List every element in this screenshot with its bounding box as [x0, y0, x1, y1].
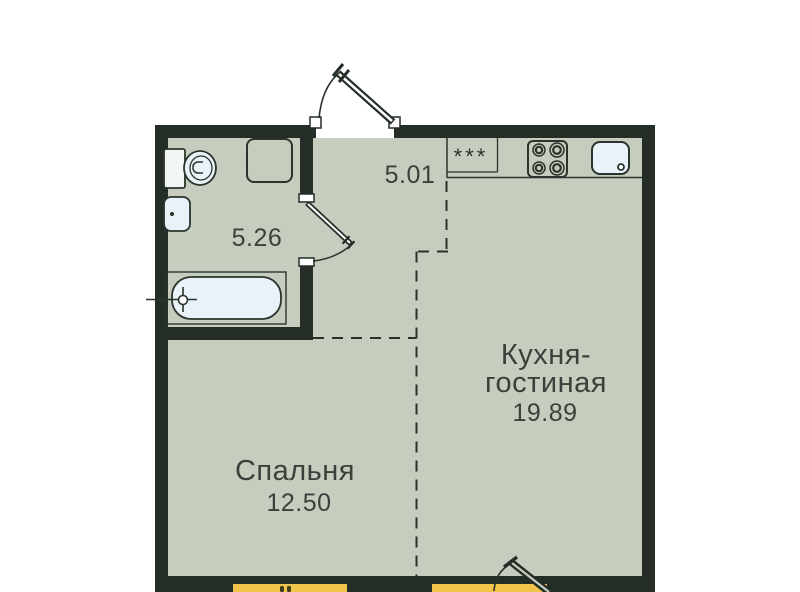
entrance-door-icon	[319, 64, 393, 122]
floor-plan-drawing: ***	[0, 0, 800, 592]
top-wall-right-segment	[394, 125, 655, 138]
bedroom-name-label: Спальня	[235, 455, 355, 487]
bathroom-bottom-wall	[155, 327, 313, 340]
bathtub-faucet	[179, 296, 188, 305]
hallway-area-label: 5.01	[385, 161, 436, 189]
kitchen-area-label: 19.89	[512, 399, 577, 427]
washbasin-bowl	[164, 197, 190, 231]
toilet-icon	[164, 149, 216, 188]
washbasin-icon	[164, 197, 190, 231]
entrance-door-arc	[319, 74, 338, 118]
entrance-jamb-left	[310, 117, 321, 128]
entrance-door-leaf-core	[339, 74, 392, 121]
kitchen-name-line2: гостиная	[485, 367, 607, 399]
window-handle-dot2	[287, 586, 291, 592]
bathroom-wall-upper	[300, 138, 313, 194]
top-wall-left-segment	[155, 125, 316, 138]
washbasin-drain	[170, 212, 174, 216]
bedroom-area-label: 12.50	[266, 489, 331, 517]
entrance-doorway-gap	[316, 125, 394, 138]
window-handle-dot1	[280, 586, 284, 592]
floor-plan-canvas: ***	[0, 0, 800, 592]
bottom-wall	[155, 576, 655, 592]
balcony-window	[432, 584, 547, 592]
bathroom-area-label: 5.26	[232, 224, 283, 252]
bathroom-jamb-bottom	[299, 258, 314, 266]
bathtub-basin	[172, 277, 281, 319]
bathroom-jamb-top	[299, 194, 314, 202]
kitchen-sink-drain	[618, 164, 624, 170]
fridge-stars-symbol: ***	[454, 144, 489, 169]
left-wall	[155, 125, 168, 592]
kitchen-sink-icon	[592, 142, 629, 174]
bathroom-wall-lower	[300, 266, 313, 330]
right-wall	[642, 125, 655, 592]
toilet-tank	[164, 149, 185, 188]
